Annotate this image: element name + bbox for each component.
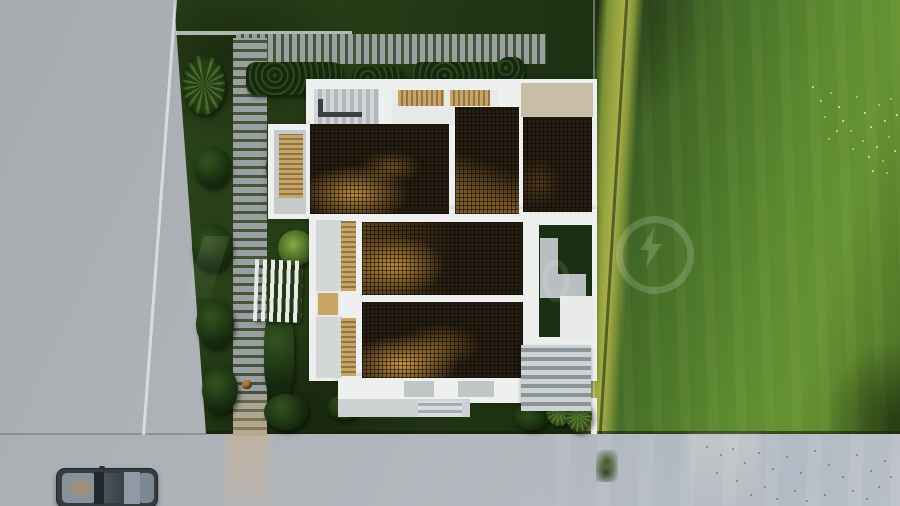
terrace-steps: [418, 401, 462, 417]
outdoor-staircase: [521, 345, 591, 411]
lightning-bolt-icon: [638, 228, 664, 268]
car-hood: [62, 473, 94, 503]
stepping-stone-path: [233, 38, 267, 436]
car-windshield: [94, 472, 104, 504]
parked-car: [56, 468, 158, 506]
terrace-inset-panel: [458, 381, 494, 397]
courtyard-white-block: [560, 296, 594, 342]
car-trunk: [140, 473, 154, 503]
car-rear-glass: [124, 472, 140, 504]
pavement-joint-line: [0, 433, 206, 435]
shrub: [202, 366, 238, 414]
picket-fence: [253, 259, 303, 323]
stair-railing: [318, 112, 362, 117]
wood-louver-panel: [279, 134, 303, 198]
path-sunlit-steps: [233, 394, 267, 436]
watermark-letter-fragment: [542, 260, 570, 302]
wood-louver-strip: [341, 221, 356, 291]
wood-deck-mat: [316, 291, 340, 317]
pergola-lattice-lower-top: [362, 222, 523, 295]
pergola-lattice-upper-right: [523, 117, 592, 212]
aerial-render-scene: Aerial top-down 3D render of a modern fl…: [0, 0, 900, 506]
wildflower-patch: [812, 86, 814, 88]
yucca-plant: [183, 55, 225, 115]
shrub: [194, 146, 230, 188]
garden-bush: [264, 394, 308, 430]
leaf-debris: [706, 446, 708, 448]
beige-roof-terrace: [517, 79, 597, 121]
terrace-inset-panel: [404, 381, 434, 397]
car-roof: [104, 473, 124, 503]
wood-louver-strip: [341, 318, 356, 376]
shrub: [196, 299, 234, 349]
stair-railing: [318, 99, 323, 116]
pergola-lattice-upper-left: [310, 124, 449, 214]
sunlight-streak: [226, 436, 268, 506]
small-animal: [242, 380, 252, 389]
pergola-lattice-lower-bottom: [362, 302, 523, 378]
wood-slat-skylight: [398, 90, 444, 106]
car-mirror: [99, 466, 105, 470]
pergola-lattice-upper-middle: [455, 107, 519, 214]
side-corridor-floor: [316, 316, 342, 378]
sidewalk-sapling: [596, 450, 618, 482]
wood-slat-skylight: [450, 90, 490, 106]
side-corridor-floor: [316, 220, 342, 292]
